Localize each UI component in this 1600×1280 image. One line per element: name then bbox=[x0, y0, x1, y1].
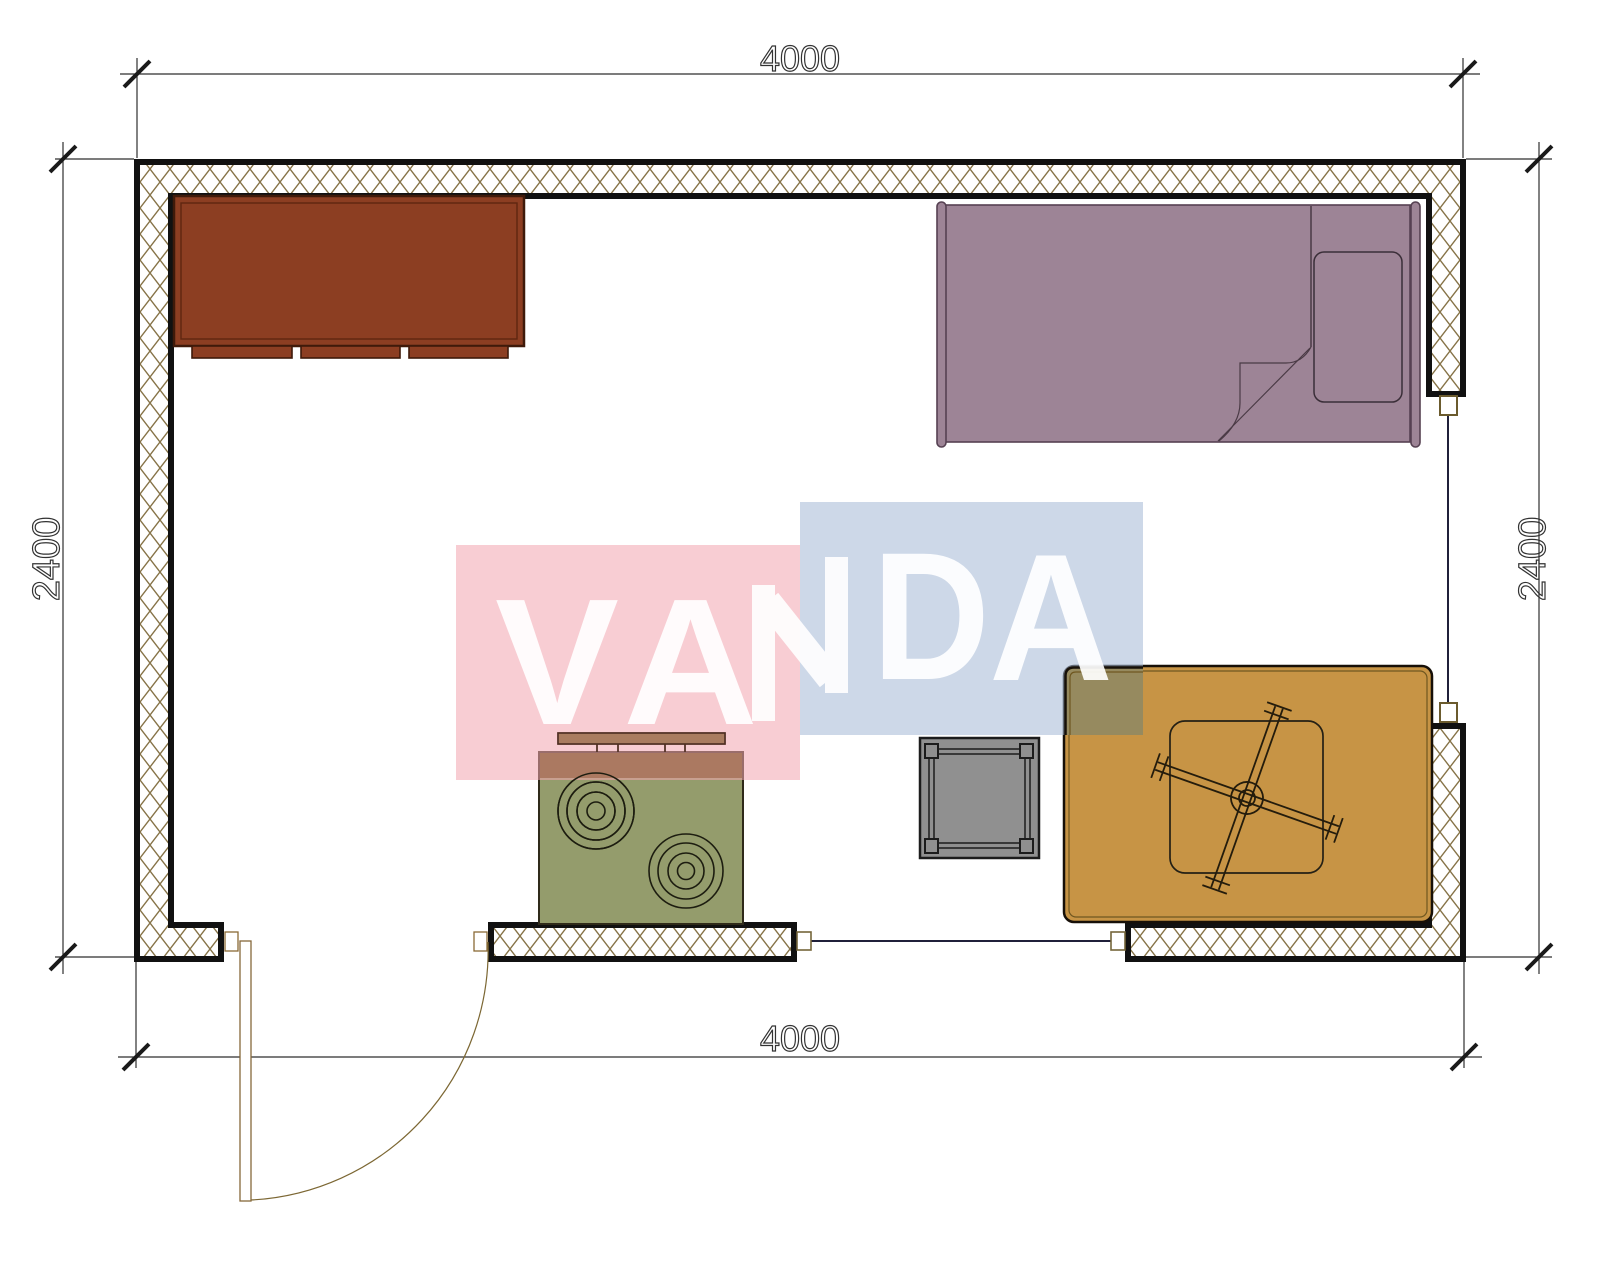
svg-text:4000: 4000 bbox=[760, 1018, 840, 1059]
svg-text:D: D bbox=[872, 514, 990, 718]
svg-text:A: A bbox=[623, 562, 758, 763]
svg-text:2400: 2400 bbox=[1512, 517, 1554, 602]
svg-text:2400: 2400 bbox=[26, 517, 68, 602]
svg-text:V: V bbox=[495, 562, 619, 763]
svg-text:A: A bbox=[989, 517, 1113, 719]
svg-text:4000: 4000 bbox=[760, 38, 840, 79]
